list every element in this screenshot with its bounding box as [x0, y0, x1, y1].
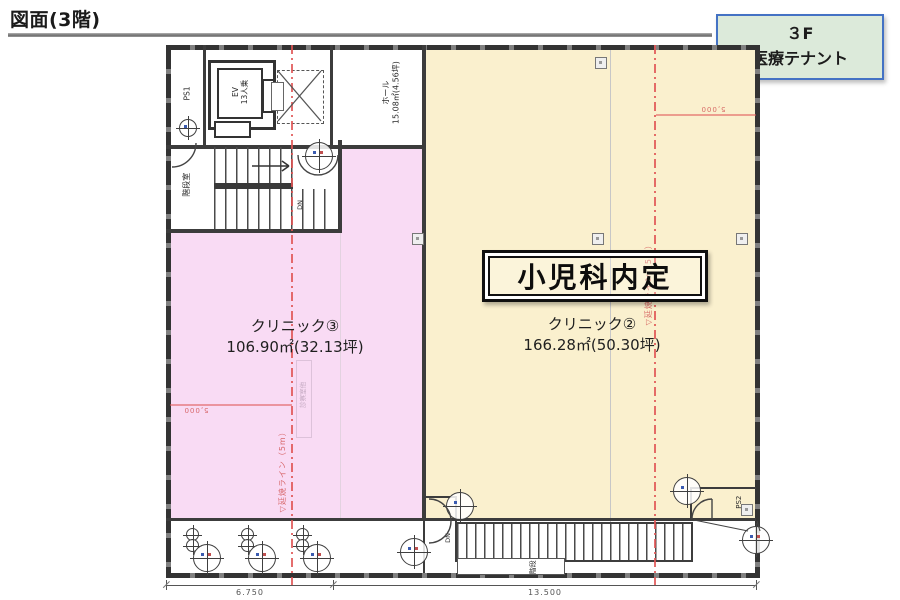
exterior-stair — [455, 522, 693, 562]
wall-clinic3-bottom — [166, 518, 426, 521]
wall-zone-divider — [422, 45, 426, 521]
crosshair-marker-icon — [446, 492, 474, 520]
grid-marker-square — [412, 233, 424, 245]
wall-stair-bottom — [166, 229, 342, 233]
crosshair-marker-icon — [248, 544, 276, 572]
crosshair-marker-icon — [742, 526, 770, 554]
wall-left — [166, 45, 171, 578]
crosshair-marker-icon — [193, 544, 221, 572]
dn-label-inner: DN — [297, 193, 305, 217]
wall-top — [166, 45, 760, 50]
floor-tag-floor: ３F — [787, 22, 814, 47]
void-side-box — [271, 82, 284, 111]
elevator-motor-box — [214, 121, 251, 138]
grid-marker-square — [592, 233, 604, 245]
wall-ps1-divider — [203, 45, 206, 148]
exterior-stair-landing — [457, 558, 565, 575]
wall-clinic2-bottom — [425, 518, 756, 521]
floor-tag-use: 医療テナント — [752, 47, 848, 72]
wall-right — [755, 45, 760, 578]
column-grid-line — [610, 47, 611, 559]
wall-stair-right — [338, 140, 342, 233]
stair-room-label: 階段室 — [182, 163, 192, 207]
floor-plan-page: 図面(3階) ３F 医療テナント EV 13人乗 PS1 ホール 15.08㎡(… — [0, 0, 900, 600]
grid-dim-label-right: 5,000 — [698, 105, 728, 113]
crosshair-marker-icon — [400, 538, 428, 566]
clinic2-label: クリニック② 166.28㎡(50.30坪) — [492, 313, 692, 355]
column-grid-line — [340, 233, 341, 519]
dimension-line — [166, 585, 757, 586]
wall-hall-divider — [330, 45, 333, 148]
zone-clinic3-upper — [341, 149, 426, 233]
fire-line-label-left: ▽延焼ライン（5m） — [278, 415, 288, 525]
crosshair-marker-icon — [303, 544, 331, 572]
stair-upper-flight — [214, 147, 293, 183]
faint-room-label: 診察室他 — [300, 360, 308, 430]
crosshair-marker-icon — [305, 142, 333, 170]
title-underline — [8, 33, 712, 37]
leader-line — [694, 520, 748, 531]
hall-label: ホール 15.08㎡(4.56坪) — [381, 38, 400, 148]
crosshair-marker-icon — [179, 119, 197, 137]
clinic3-label: クリニック③ 106.90㎡(32.13坪) — [195, 315, 395, 357]
elevator-label: EV 13人乗 — [231, 64, 249, 120]
dn-label-outer: DN — [445, 526, 453, 550]
tenant-decided-box: 小児科内定 — [482, 250, 708, 302]
crosshair-marker-icon — [673, 477, 701, 505]
stair-lower-flight — [214, 189, 332, 229]
grid-dim-label-left: 5,000 — [181, 406, 211, 414]
dimension-label-left: 6.750 — [210, 588, 290, 597]
grid-marker-square — [595, 57, 607, 69]
page-title: 図面(3階) — [10, 5, 101, 32]
void-opening-box — [277, 70, 324, 124]
grid-dim-line-right — [656, 114, 756, 116]
grid-marker-square — [736, 233, 748, 245]
exterior-stair-label: 階段 — [529, 552, 537, 582]
ps1-label: PS1 — [183, 79, 192, 109]
ps2-marker-square — [741, 504, 753, 516]
dimension-label-right: 13.500 — [505, 588, 585, 597]
